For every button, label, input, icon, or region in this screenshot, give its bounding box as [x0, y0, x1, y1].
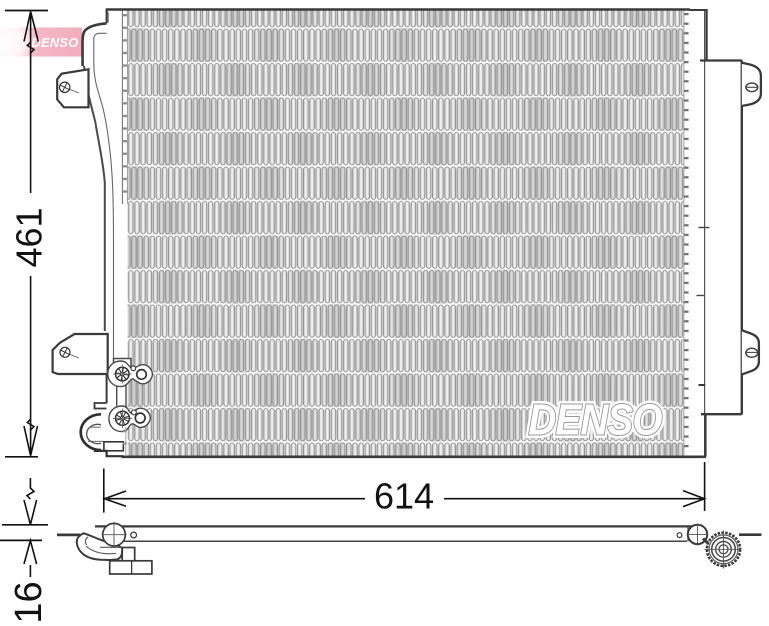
svg-text:614: 614: [374, 476, 434, 517]
svg-text:16: 16: [8, 581, 50, 623]
svg-text:461: 461: [9, 207, 50, 267]
svg-text:DENSO: DENSO: [528, 394, 662, 444]
svg-text:DENSO: DENSO: [31, 35, 78, 50]
